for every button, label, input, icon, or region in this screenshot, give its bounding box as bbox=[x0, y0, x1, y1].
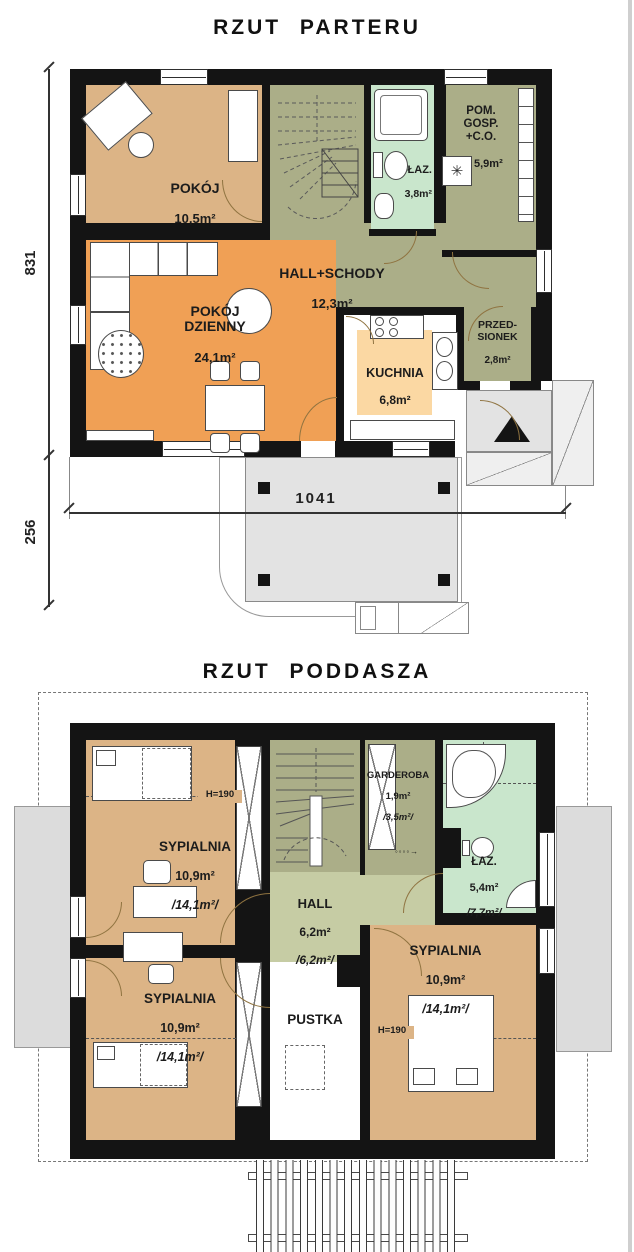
access-arrow-icon: ◦◦◦◦→ bbox=[390, 848, 424, 860]
scan-edge bbox=[628, 0, 632, 1252]
boiler-icon: ✳ bbox=[442, 156, 472, 186]
terrace bbox=[245, 457, 458, 602]
room-name: PRZED- SIONEK bbox=[464, 320, 531, 344]
pillow bbox=[97, 1046, 115, 1060]
terrace-post bbox=[258, 574, 270, 586]
sink-basin bbox=[436, 337, 453, 357]
room-sypialnia-nw-label: SYPIALNIA 10,9m² /14,1m²/ bbox=[130, 824, 260, 886]
room-staircase bbox=[270, 85, 364, 223]
room-name: POM. GOSP. +C.O. bbox=[450, 105, 512, 144]
sofa-corner bbox=[90, 242, 130, 312]
room-sypialnia-se-label: SYPIALNIA 10,9m² /14,1m²/ bbox=[378, 928, 513, 992]
dining-table bbox=[205, 385, 265, 431]
window bbox=[444, 69, 488, 85]
entry-side-steps bbox=[552, 380, 594, 486]
entry-door-opening bbox=[480, 381, 510, 390]
room-area: 10,9m² bbox=[130, 869, 260, 883]
h190-label: H=190 bbox=[370, 1026, 414, 1039]
room-area: 3,8m² bbox=[386, 189, 432, 201]
sofa bbox=[128, 242, 218, 276]
room-name: ŁAZ. bbox=[386, 164, 432, 176]
terrace-step bbox=[360, 606, 376, 630]
dim-line-1041 bbox=[69, 512, 566, 514]
room-dzienny-label: POKÓJ DZIENNY 24,1m² bbox=[145, 288, 285, 346]
room-area: 6,8m² bbox=[352, 394, 438, 407]
dimension-256: 256 bbox=[10, 512, 50, 552]
toilet bbox=[373, 152, 383, 178]
window bbox=[70, 174, 86, 216]
room-hall-label: HALL+SCHODY 12,3m² bbox=[266, 250, 398, 292]
room-area: 24,1m² bbox=[145, 351, 285, 366]
window bbox=[539, 832, 555, 907]
staircase-icon bbox=[270, 740, 360, 872]
staircase-icon bbox=[270, 85, 364, 223]
room-laz-label: ŁAZ. 3,8m² bbox=[386, 152, 432, 196]
room-area: 1,9m² bbox=[358, 792, 438, 803]
dimension-831: 831 bbox=[10, 243, 50, 283]
room-staircase-attic bbox=[270, 740, 360, 872]
shower-tray bbox=[380, 95, 422, 135]
window bbox=[160, 69, 208, 85]
pillow bbox=[96, 750, 116, 766]
room-area: 2,8m² bbox=[464, 355, 531, 366]
desk bbox=[123, 932, 183, 962]
terrace-door-opening bbox=[301, 441, 335, 457]
poddasze-title: RZUT PODDASZA bbox=[117, 660, 517, 690]
burner-icon bbox=[389, 328, 398, 337]
terrace-step-diagonal bbox=[420, 602, 469, 634]
room-area2: /7,7m²/ bbox=[455, 907, 513, 919]
sink-basin bbox=[436, 361, 453, 381]
pillow bbox=[413, 1068, 435, 1085]
room-laz-attic-label: ŁAZ. 5,4m² /7,7m²/ bbox=[455, 843, 513, 905]
kitchen-cabinets bbox=[350, 420, 455, 440]
room-area: 5,4m² bbox=[455, 882, 513, 894]
pergola-bars bbox=[256, 1160, 462, 1252]
room-area: 10,5m² bbox=[130, 212, 260, 227]
chair bbox=[240, 433, 260, 453]
window-bench bbox=[86, 430, 154, 441]
room-name: KUCHNIA bbox=[352, 366, 438, 380]
room-area2: /3,5m²/ bbox=[358, 813, 438, 824]
window bbox=[70, 896, 86, 938]
chair bbox=[128, 132, 154, 158]
roof-slab-right bbox=[556, 806, 612, 1052]
room-area2: /6,2m²/ bbox=[280, 954, 350, 967]
terrace-post bbox=[258, 482, 270, 494]
room-name: HALL+SCHODY bbox=[266, 266, 398, 282]
room-area2: /14,1m²/ bbox=[130, 898, 260, 912]
window bbox=[162, 441, 245, 457]
terrace-step-line bbox=[398, 602, 399, 634]
entry-front-steps bbox=[466, 452, 552, 486]
room-pokoj-label: POKÓJ 10,5m² bbox=[130, 165, 260, 205]
room-area: 10,9m² bbox=[378, 973, 513, 987]
roof-slab-left bbox=[14, 806, 72, 1048]
room-area: 10,9m² bbox=[115, 1021, 245, 1035]
h190-label: H=190 bbox=[198, 790, 242, 803]
room-kuchnia-label: KUCHNIA 6,8m² bbox=[352, 352, 438, 392]
plant bbox=[98, 330, 144, 378]
room-name: ŁAZ. bbox=[455, 856, 513, 869]
room-hall-attic-label: HALL 6,2m² /6,2m²/ bbox=[280, 882, 350, 944]
window bbox=[539, 928, 555, 974]
floor-plan-sheet: RZUT PARTERU 831 256 1041 bbox=[0, 0, 634, 1252]
terrace-post bbox=[438, 574, 450, 586]
room-pom-gosp-label: POM. GOSP. +C.O. bbox=[450, 92, 512, 154]
pillow bbox=[456, 1068, 478, 1085]
shelving bbox=[518, 88, 534, 222]
room-sypialnia-sw-label: SYPIALNIA 10,9m² /14,1m²/ bbox=[115, 976, 245, 1038]
burner-icon bbox=[375, 328, 384, 337]
room-name: GARDEROBA bbox=[358, 771, 438, 782]
room-name: SYPIALNIA bbox=[378, 943, 513, 958]
room-pom-gosp-area: 5,9m² bbox=[474, 158, 524, 174]
parter-title: RZUT PARTERU bbox=[117, 16, 517, 46]
wardrobe bbox=[228, 90, 258, 162]
window bbox=[536, 249, 552, 293]
window bbox=[392, 441, 430, 457]
room-name: SYPIALNIA bbox=[115, 991, 245, 1006]
room-name: SYPIALNIA bbox=[130, 839, 260, 854]
terrace-post bbox=[438, 482, 450, 494]
dimension-1041: 1041 bbox=[288, 490, 344, 510]
room-garderoba-label: GARDEROBA 1,9m² /3,5m²/ bbox=[358, 760, 438, 810]
dim-tick bbox=[560, 502, 571, 513]
room-area2: /14,1m²/ bbox=[115, 1050, 245, 1064]
wall-segment bbox=[360, 925, 370, 941]
window bbox=[70, 305, 86, 345]
room-przedsionek-label: PRZED- SIONEK 2,8m² bbox=[464, 308, 531, 366]
pustka-opening-outline bbox=[285, 1045, 325, 1090]
room-pustka-label: PUSTKA bbox=[270, 1012, 360, 1032]
room-area: 12,3m² bbox=[266, 297, 398, 312]
room-name: POKÓJ bbox=[130, 181, 260, 197]
room-name: POKÓJ DZIENNY bbox=[145, 304, 285, 335]
bed-half-outline bbox=[142, 748, 191, 799]
chair bbox=[210, 433, 230, 453]
room-name: HALL bbox=[280, 897, 350, 912]
dim-ext-line bbox=[69, 457, 70, 519]
room-area: 6,2m² bbox=[280, 926, 350, 939]
room-area2: /14,1m²/ bbox=[378, 1002, 513, 1016]
window bbox=[70, 958, 86, 998]
